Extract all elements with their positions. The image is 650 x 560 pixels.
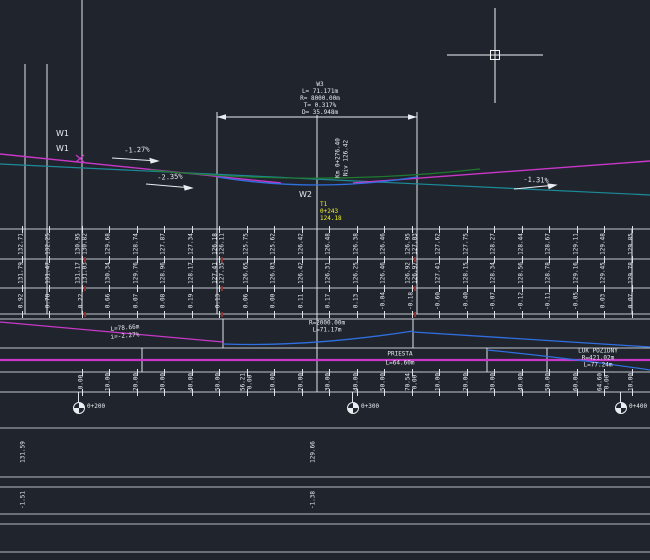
design-elevation-label: 127.35 bbox=[219, 262, 226, 284]
red-tick bbox=[414, 312, 416, 317]
cutfill-value-label: -0.60 bbox=[436, 292, 443, 310]
distance-tick bbox=[467, 369, 468, 376]
column-tick bbox=[384, 226, 385, 233]
column-tick bbox=[412, 285, 413, 292]
column-tick bbox=[192, 311, 193, 318]
column-tick bbox=[522, 285, 523, 292]
distance-tick bbox=[82, 389, 83, 396]
terrain-elevation-label: 128.27 bbox=[491, 233, 498, 255]
distance-tick bbox=[219, 369, 220, 376]
column-tick bbox=[219, 311, 220, 318]
red-tick bbox=[221, 257, 223, 262]
column-tick bbox=[274, 226, 275, 233]
column-tick bbox=[247, 311, 248, 318]
tangent-length-label: L=64.60m bbox=[386, 361, 415, 368]
column-tick bbox=[109, 311, 110, 318]
column-tick bbox=[604, 256, 605, 263]
terrain-elevation-label: 126.11 bbox=[219, 233, 226, 255]
terrain-elevation-label: 126.48 bbox=[326, 233, 333, 255]
w2-label: W2 bbox=[299, 191, 312, 200]
design-elevation-label: 128.78 bbox=[546, 262, 553, 284]
column-tick bbox=[632, 226, 633, 233]
column-tick bbox=[467, 256, 468, 263]
cutfill-value-label: 0.22 bbox=[79, 294, 86, 308]
distance-tick bbox=[192, 389, 193, 396]
design-elevation-label: 127.41 bbox=[436, 262, 443, 284]
cutfill-value-label: 0.07 bbox=[134, 294, 141, 308]
distance-tick bbox=[109, 389, 110, 396]
column-tick bbox=[274, 285, 275, 292]
column-tick bbox=[467, 311, 468, 318]
design-elevation-label: 129.45 bbox=[601, 262, 608, 284]
terrain-elevation-label: 128.44 bbox=[519, 233, 526, 255]
distance-tick bbox=[439, 369, 440, 376]
station-label: 0+200 bbox=[87, 404, 105, 411]
grade-label-left: -1.27% bbox=[124, 146, 150, 155]
design-elevation-label: 130.34 bbox=[106, 262, 113, 284]
cutfill-value-label: -0.18 bbox=[409, 292, 416, 310]
column-tick bbox=[632, 256, 633, 263]
distance-tick bbox=[467, 389, 468, 396]
distance-tick bbox=[302, 369, 303, 376]
cutfill-value-label: 0.92 bbox=[19, 294, 26, 308]
column-tick bbox=[412, 311, 413, 318]
cutfill-value-label: 0.13 bbox=[216, 294, 223, 308]
design-elevation-label: 128.56 bbox=[519, 262, 526, 284]
station-label: 0+300 bbox=[361, 404, 379, 411]
column-tick bbox=[22, 285, 23, 292]
column-tick bbox=[494, 226, 495, 233]
distance-label: 0.00 bbox=[604, 375, 611, 389]
column-tick bbox=[274, 311, 275, 318]
column-tick bbox=[439, 256, 440, 263]
cad-viewport: W1 W1 W3 L= 71.171m R= 8000.00m T= 0.317… bbox=[0, 0, 650, 560]
column-tick bbox=[412, 256, 413, 263]
design-elevation-label: 131.03 bbox=[82, 262, 89, 284]
distance-tick bbox=[604, 389, 605, 396]
design-elevation-label: 126.97 bbox=[412, 262, 419, 284]
bottom-slope-label: -1.38 bbox=[311, 491, 318, 509]
column-tick bbox=[192, 256, 193, 263]
cutfill-value-label: -0.11 bbox=[546, 292, 553, 310]
distance-tick bbox=[164, 389, 165, 396]
terrain-elevation-label: 127.34 bbox=[189, 233, 196, 255]
bottom-elevation-label: 131.59 bbox=[21, 441, 28, 463]
column-tick bbox=[604, 285, 605, 292]
station-marker-icon bbox=[73, 402, 85, 414]
cutfill-value-label: 0.66 bbox=[106, 294, 113, 308]
column-tick bbox=[22, 256, 23, 263]
column-tick bbox=[329, 285, 330, 292]
distance-label: 0.00 bbox=[247, 375, 254, 389]
w3-bisector: D= 35.948m bbox=[300, 110, 340, 117]
column-tick bbox=[357, 311, 358, 318]
terrain-elevation-label: 126.42 bbox=[299, 233, 306, 255]
design-elevation-label: 126.25 bbox=[354, 262, 361, 284]
column-tick bbox=[439, 285, 440, 292]
design-elevation-label: 131.79 bbox=[19, 262, 26, 284]
column-tick bbox=[549, 226, 550, 233]
column-tick bbox=[329, 311, 330, 318]
column-tick bbox=[577, 311, 578, 318]
grade-label-right: -1.31% bbox=[523, 176, 549, 185]
design-elevation-label: 126.42 bbox=[299, 262, 306, 284]
column-tick bbox=[302, 311, 303, 318]
w3-curve-data-block: W3 L= 71.171m R= 8000.00m T= 0.317% D= 3… bbox=[300, 82, 340, 116]
column-tick bbox=[164, 256, 165, 263]
cutfill-value-label: -0.04 bbox=[381, 292, 388, 310]
column-tick bbox=[109, 256, 110, 263]
column-tick bbox=[577, 285, 578, 292]
column-tick bbox=[302, 226, 303, 233]
distance-tick bbox=[439, 389, 440, 396]
column-tick bbox=[49, 285, 50, 292]
distance-tick bbox=[494, 389, 495, 396]
tangent-name-label: PRIESTA bbox=[387, 352, 412, 359]
distance-tick bbox=[164, 369, 165, 376]
column-tick bbox=[164, 285, 165, 292]
red-tick bbox=[414, 257, 416, 262]
cutfill-value-label: -0.07 bbox=[491, 292, 498, 310]
label-overlay: W1 W1 W3 L= 71.171m R= 8000.00m T= 0.317… bbox=[0, 0, 650, 560]
red-tick bbox=[84, 257, 86, 262]
column-tick bbox=[82, 256, 83, 263]
column-tick bbox=[82, 285, 83, 292]
cutfill-value-label: 0.78 bbox=[46, 294, 53, 308]
column-tick bbox=[357, 285, 358, 292]
bottom-elevation-label: 129.66 bbox=[311, 441, 318, 463]
column-tick bbox=[49, 226, 50, 233]
column-tick bbox=[109, 226, 110, 233]
terrain-elevation-label: 127.87 bbox=[161, 233, 168, 255]
red-tick bbox=[221, 312, 223, 317]
cutfill-value-label: 0.07 bbox=[629, 294, 636, 308]
column-tick bbox=[384, 285, 385, 292]
design-elevation-label: 129.16 bbox=[574, 262, 581, 284]
terrain-elevation-label: 126.46 bbox=[381, 233, 388, 255]
distance-tick bbox=[494, 369, 495, 376]
column-tick bbox=[384, 256, 385, 263]
distance-tick bbox=[247, 389, 248, 396]
column-tick bbox=[522, 226, 523, 233]
station-marker-icon bbox=[615, 402, 627, 414]
w1-label-top: W1 bbox=[56, 130, 69, 139]
cutfill-value-label: 0.13 bbox=[354, 294, 361, 308]
column-tick bbox=[192, 285, 193, 292]
column-tick bbox=[577, 226, 578, 233]
distance-tick bbox=[357, 369, 358, 376]
sag-elevation-note: Niv 126.42 bbox=[344, 140, 351, 176]
column-tick bbox=[384, 311, 385, 318]
cutfill-value-label: 0.17 bbox=[326, 294, 333, 308]
column-tick bbox=[109, 285, 110, 292]
column-tick bbox=[412, 226, 413, 233]
cutfill-value-label: 0.08 bbox=[161, 294, 168, 308]
column-tick bbox=[164, 226, 165, 233]
terrain-elevation-label: 125.75 bbox=[244, 233, 251, 255]
distance-tick bbox=[549, 369, 550, 376]
column-tick bbox=[494, 285, 495, 292]
distance-tick bbox=[274, 369, 275, 376]
column-tick bbox=[219, 256, 220, 263]
cutfill-value-label: 0.11 bbox=[299, 294, 306, 308]
column-tick bbox=[302, 285, 303, 292]
column-tick bbox=[549, 256, 550, 263]
red-tick bbox=[84, 286, 86, 291]
design-elevation-label: 126.65 bbox=[244, 262, 251, 284]
cutfill-value-label: -0.05 bbox=[574, 292, 581, 310]
column-tick bbox=[549, 311, 550, 318]
distance-tick bbox=[247, 369, 248, 376]
distance-tick bbox=[137, 369, 138, 376]
distance-tick bbox=[412, 389, 413, 396]
cutfill-value-label: 0.06 bbox=[244, 294, 251, 308]
column-tick bbox=[219, 285, 220, 292]
column-tick bbox=[522, 256, 523, 263]
column-tick bbox=[22, 226, 23, 233]
distance-label: 0.00 bbox=[412, 375, 419, 389]
column-tick bbox=[357, 256, 358, 263]
column-tick bbox=[494, 311, 495, 318]
column-tick bbox=[329, 226, 330, 233]
terrain-elevation-label: 132.25 bbox=[46, 233, 53, 255]
cutfill-value-label: -0.40 bbox=[464, 292, 471, 310]
column-tick bbox=[494, 256, 495, 263]
terrain-elevation-label: 126.38 bbox=[354, 233, 361, 255]
column-tick bbox=[247, 256, 248, 263]
cutfill-value-label: -0.12 bbox=[519, 292, 526, 310]
column-tick bbox=[137, 226, 138, 233]
distance-tick bbox=[632, 369, 633, 376]
bottom-slope-label: -1.51 bbox=[21, 491, 28, 509]
terrain-elevation-label: 129.11 bbox=[574, 233, 581, 255]
red-tick bbox=[84, 312, 86, 317]
distance-tick bbox=[632, 389, 633, 396]
distance-tick bbox=[384, 369, 385, 376]
sag-station-note: Km 0+276.40 bbox=[336, 138, 343, 178]
column-tick bbox=[219, 226, 220, 233]
w1-label-bottom: W1 bbox=[56, 145, 69, 154]
distance-tick bbox=[357, 389, 358, 396]
column-tick bbox=[439, 226, 440, 233]
red-tick bbox=[221, 286, 223, 291]
column-tick bbox=[632, 285, 633, 292]
column-tick bbox=[604, 226, 605, 233]
cutfill-value-label: 0.00 bbox=[271, 294, 278, 308]
design-elevation-label: 126.03 bbox=[271, 262, 278, 284]
column-tick bbox=[577, 256, 578, 263]
column-tick bbox=[137, 256, 138, 263]
column-tick bbox=[192, 226, 193, 233]
design-elevation-label: 131.47 bbox=[46, 262, 53, 284]
design-elevation-label: 128.96 bbox=[161, 262, 168, 284]
distance-tick bbox=[274, 389, 275, 396]
design-elevation-label: 129.78 bbox=[629, 262, 636, 284]
column-tick bbox=[549, 285, 550, 292]
design-elevation-label: 129.76 bbox=[134, 262, 141, 284]
distance-tick bbox=[302, 389, 303, 396]
distance-tick bbox=[412, 369, 413, 376]
column-tick bbox=[329, 256, 330, 263]
distance-tick bbox=[604, 369, 605, 376]
design-elevation-label: 126.46 bbox=[381, 262, 388, 284]
distance-tick bbox=[384, 389, 385, 396]
distance-tick bbox=[522, 369, 523, 376]
design-elevation-label: 128.15 bbox=[464, 262, 471, 284]
column-tick bbox=[49, 256, 50, 263]
curve-length-label: L=77.24m bbox=[584, 363, 613, 370]
terrain-elevation-label: 129.68 bbox=[106, 233, 113, 255]
terrain-elevation-label: 130.82 bbox=[82, 233, 89, 255]
distance-tick bbox=[219, 389, 220, 396]
column-tick bbox=[604, 311, 605, 318]
column-tick bbox=[439, 311, 440, 318]
red-tick bbox=[414, 286, 416, 291]
design-elevation-label: 128.17 bbox=[189, 262, 196, 284]
distance-tick bbox=[192, 369, 193, 376]
terrain-elevation-label: 128.67 bbox=[546, 233, 553, 255]
cutfill-value-label: 0.03 bbox=[601, 294, 608, 308]
terrain-elevation-label: 127.62 bbox=[436, 233, 443, 255]
column-tick bbox=[247, 285, 248, 292]
terrain-elevation-label: 125.62 bbox=[271, 233, 278, 255]
column-tick bbox=[49, 311, 50, 318]
column-tick bbox=[467, 226, 468, 233]
distance-tick bbox=[577, 369, 578, 376]
distance-tick bbox=[522, 389, 523, 396]
grade-diagram-slope: i=-2.27% bbox=[110, 332, 139, 341]
distance-tick bbox=[329, 369, 330, 376]
distance-tick bbox=[577, 389, 578, 396]
grade-label-mid: -2.35% bbox=[157, 173, 183, 182]
distance-tick bbox=[549, 389, 550, 396]
terrain-elevation-label: 129.85 bbox=[629, 233, 636, 255]
column-tick bbox=[632, 311, 633, 318]
column-tick bbox=[274, 256, 275, 263]
column-tick bbox=[357, 226, 358, 233]
design-elevation-label: 128.34 bbox=[491, 262, 498, 284]
terrain-elevation-label: 129.48 bbox=[601, 233, 608, 255]
terrain-elevation-label: 127.03 bbox=[412, 233, 419, 255]
vcurve-length-label: L=71.17m bbox=[313, 328, 342, 335]
column-tick bbox=[82, 226, 83, 233]
cutfill-value-label: 0.19 bbox=[189, 294, 196, 308]
column-tick bbox=[247, 226, 248, 233]
column-tick bbox=[82, 311, 83, 318]
column-tick bbox=[522, 311, 523, 318]
vertex-note-line3: 124.18 bbox=[320, 216, 342, 223]
station-marker-icon bbox=[347, 402, 359, 414]
distance-tick bbox=[82, 369, 83, 376]
distance-tick bbox=[137, 389, 138, 396]
distance-tick bbox=[109, 369, 110, 376]
column-tick bbox=[164, 311, 165, 318]
distance-tick bbox=[329, 389, 330, 396]
column-tick bbox=[302, 256, 303, 263]
terrain-elevation-label: 132.71 bbox=[19, 233, 26, 255]
station-label: 0+400 bbox=[629, 404, 647, 411]
column-tick bbox=[137, 311, 138, 318]
distance-label: 0.00 bbox=[79, 375, 86, 389]
column-tick bbox=[467, 285, 468, 292]
column-tick bbox=[137, 285, 138, 292]
design-elevation-label: 126.31 bbox=[326, 262, 333, 284]
terrain-elevation-label: 128.74 bbox=[134, 233, 141, 255]
column-tick bbox=[22, 311, 23, 318]
terrain-elevation-label: 127.75 bbox=[464, 233, 471, 255]
